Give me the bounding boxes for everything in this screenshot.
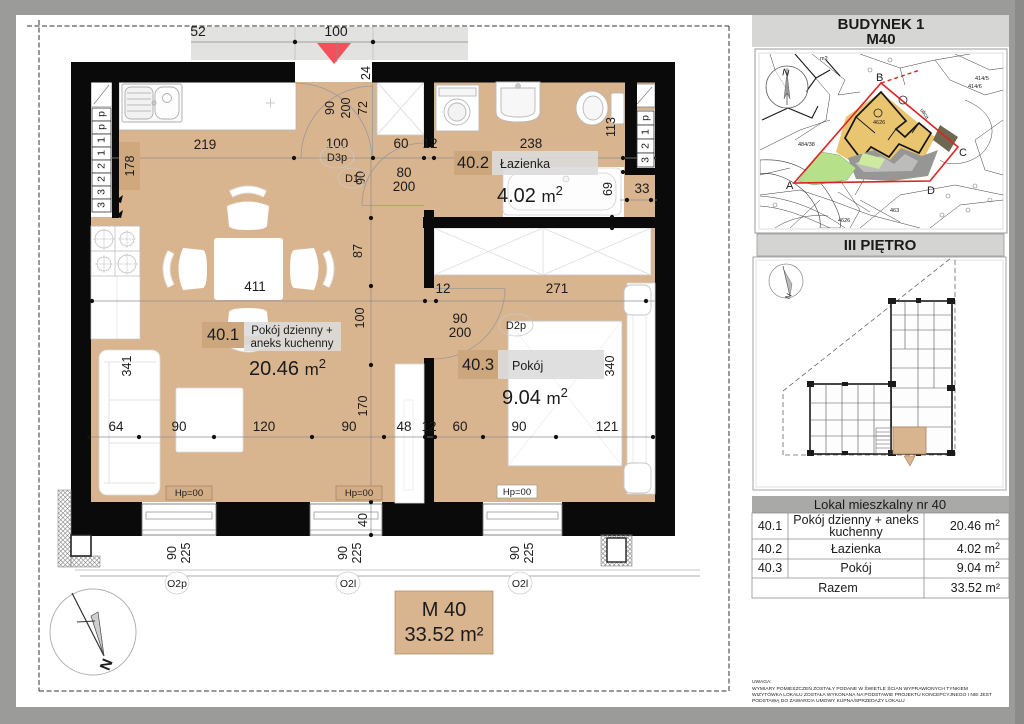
svg-text:90: 90 bbox=[341, 419, 356, 434]
svg-text:B: B bbox=[876, 72, 883, 84]
svg-text:Lokal mieszkalny nr 40: Lokal mieszkalny nr 40 bbox=[814, 497, 946, 512]
svg-text:170: 170 bbox=[356, 396, 370, 417]
svg-text:40.1: 40.1 bbox=[207, 326, 239, 344]
svg-text:90: 90 bbox=[511, 419, 526, 434]
svg-text:64: 64 bbox=[108, 419, 124, 434]
svg-text:113: 113 bbox=[604, 117, 618, 137]
svg-text:40.2: 40.2 bbox=[457, 154, 489, 172]
svg-text:2: 2 bbox=[640, 143, 652, 149]
svg-text:40.3: 40.3 bbox=[758, 561, 782, 575]
svg-text:225: 225 bbox=[522, 543, 536, 564]
svg-text:40: 40 bbox=[356, 513, 370, 527]
svg-text:D: D bbox=[927, 185, 935, 197]
svg-text:O2l: O2l bbox=[512, 578, 528, 590]
svg-text:200: 200 bbox=[449, 325, 472, 340]
svg-text:4.02 m2: 4.02 m2 bbox=[957, 541, 1000, 556]
svg-text:90: 90 bbox=[323, 101, 337, 115]
svg-text:90: 90 bbox=[165, 546, 179, 560]
svg-text:p: p bbox=[96, 111, 108, 117]
svg-text:219: 219 bbox=[194, 137, 217, 152]
svg-text:4.02 m2: 4.02 m2 bbox=[497, 183, 563, 207]
svg-text:340: 340 bbox=[603, 356, 617, 377]
svg-text:100: 100 bbox=[324, 23, 348, 39]
svg-text:Pokój: Pokój bbox=[512, 359, 543, 373]
svg-text:D2p: D2p bbox=[506, 320, 526, 332]
svg-text:411: 411 bbox=[244, 279, 266, 294]
svg-text:D1: D1 bbox=[345, 173, 359, 185]
svg-text:484/38: 484/38 bbox=[798, 142, 815, 148]
svg-text:12: 12 bbox=[421, 419, 436, 434]
svg-text:80: 80 bbox=[396, 165, 411, 180]
svg-text:Hp=00: Hp=00 bbox=[503, 487, 531, 498]
svg-text:52: 52 bbox=[190, 23, 206, 39]
svg-text:O2p: O2p bbox=[167, 578, 187, 590]
svg-text:120: 120 bbox=[253, 419, 276, 434]
svg-text:87: 87 bbox=[351, 244, 365, 258]
svg-text:40.1: 40.1 bbox=[758, 519, 782, 533]
svg-text:Hp=00: Hp=00 bbox=[345, 488, 373, 499]
svg-text:1: 1 bbox=[640, 129, 652, 135]
svg-text:463: 463 bbox=[890, 208, 899, 214]
svg-text:kuchenny: kuchenny bbox=[829, 525, 883, 539]
svg-text:1: 1 bbox=[96, 150, 108, 156]
svg-text:414/6: 414/6 bbox=[968, 84, 982, 90]
svg-text:3: 3 bbox=[640, 157, 652, 163]
svg-text:III PIĘTRO: III PIĘTRO bbox=[844, 237, 917, 254]
svg-text:Łazienka: Łazienka bbox=[500, 157, 550, 171]
svg-text:20.46 m2: 20.46 m2 bbox=[249, 356, 326, 380]
svg-text:121: 121 bbox=[596, 419, 619, 434]
svg-text:M40: M40 bbox=[866, 31, 895, 48]
svg-text:D3p: D3p bbox=[327, 152, 347, 164]
svg-text:9.04 m2: 9.04 m2 bbox=[957, 560, 1000, 575]
svg-text:3: 3 bbox=[96, 202, 108, 208]
svg-text:238: 238 bbox=[520, 136, 543, 151]
svg-text:A: A bbox=[786, 180, 794, 192]
svg-text:100: 100 bbox=[353, 308, 367, 329]
svg-text:60: 60 bbox=[452, 419, 467, 434]
svg-text:PODSTAWĄ DO ZAWARCIA UMOWY KUP: PODSTAWĄ DO ZAWARCIA UMOWY KUPNA/SPRZEDA… bbox=[752, 697, 905, 704]
svg-text:WIZYTÓWKA LOKALU ZOSTAŁA WYKON: WIZYTÓWKA LOKALU ZOSTAŁA WYKONANA NA POD… bbox=[752, 691, 992, 698]
svg-text:9.04 m2: 9.04 m2 bbox=[502, 385, 568, 409]
svg-text:Pokój: Pokój bbox=[840, 561, 871, 575]
svg-text:33.52 m²: 33.52 m² bbox=[951, 581, 1000, 595]
svg-text:90: 90 bbox=[508, 546, 522, 560]
svg-text:33: 33 bbox=[634, 181, 649, 196]
svg-text:72: 72 bbox=[356, 101, 370, 115]
svg-text:p: p bbox=[96, 124, 108, 130]
svg-text:4626: 4626 bbox=[873, 120, 885, 126]
svg-text:Hp=00: Hp=00 bbox=[175, 488, 203, 499]
svg-text:2: 2 bbox=[96, 176, 108, 182]
svg-text:60: 60 bbox=[393, 136, 408, 151]
svg-text:90: 90 bbox=[452, 311, 467, 326]
svg-text:Łazienka: Łazienka bbox=[831, 542, 881, 556]
svg-text:271: 271 bbox=[546, 281, 569, 296]
svg-text:p: p bbox=[640, 115, 652, 121]
svg-text:12: 12 bbox=[422, 136, 437, 151]
svg-text:UWAGA:: UWAGA: bbox=[752, 679, 772, 685]
svg-text:90: 90 bbox=[336, 546, 350, 560]
svg-text:12: 12 bbox=[435, 281, 450, 296]
svg-text:178: 178 bbox=[123, 156, 137, 177]
svg-text:M 40: M 40 bbox=[422, 599, 466, 621]
svg-text:24: 24 bbox=[359, 66, 373, 80]
svg-text:69: 69 bbox=[601, 182, 615, 196]
svg-text:414/5: 414/5 bbox=[975, 76, 989, 82]
svg-text:2: 2 bbox=[96, 163, 108, 169]
svg-text:40.2: 40.2 bbox=[758, 542, 782, 556]
svg-text:200: 200 bbox=[393, 179, 416, 194]
svg-text:90: 90 bbox=[171, 419, 186, 434]
svg-text:200: 200 bbox=[339, 98, 353, 119]
svg-text:225: 225 bbox=[350, 543, 364, 564]
svg-text:m2: m2 bbox=[820, 56, 828, 62]
svg-text:20.46 m2: 20.46 m2 bbox=[950, 518, 1000, 533]
svg-text:48: 48 bbox=[396, 419, 411, 434]
svg-text:Pokój dzienny +: Pokój dzienny + bbox=[251, 325, 333, 337]
svg-text:4626: 4626 bbox=[838, 218, 850, 224]
svg-text:341: 341 bbox=[120, 356, 134, 377]
svg-text:33.52 m²: 33.52 m² bbox=[405, 624, 484, 646]
svg-text:1: 1 bbox=[96, 137, 108, 143]
svg-text:O2l: O2l bbox=[340, 578, 356, 590]
svg-text:C: C bbox=[959, 147, 967, 159]
svg-text:225: 225 bbox=[179, 543, 193, 564]
svg-text:100: 100 bbox=[326, 136, 349, 151]
svg-text:40.3: 40.3 bbox=[462, 356, 494, 374]
svg-text:Razem: Razem bbox=[818, 581, 858, 595]
svg-text:aneks kuchenny: aneks kuchenny bbox=[250, 338, 333, 350]
svg-text:3: 3 bbox=[96, 189, 108, 195]
